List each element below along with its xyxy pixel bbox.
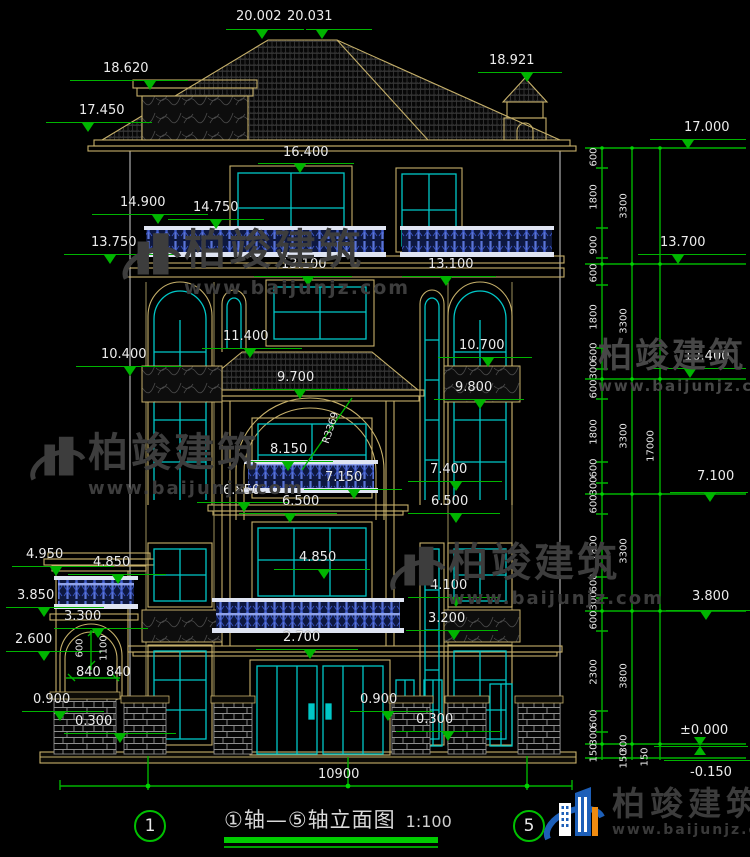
drawing-title-block: ①轴—⑤轴立面图 1:100: [224, 804, 452, 848]
elevation-label: 11.400: [223, 330, 269, 344]
elevation-line: [46, 122, 152, 123]
elevation-line: [92, 214, 208, 215]
level-triangle: [704, 493, 716, 502]
elevation-label: 10.400: [101, 348, 147, 362]
level-triangle: [442, 732, 454, 741]
drawing-title: ①轴—⑤轴立面图: [224, 804, 396, 834]
chain-dimension: 150: [589, 743, 600, 762]
elevation-line: [70, 80, 188, 81]
elevation-label: 18.921: [489, 54, 535, 68]
level-triangle: [700, 611, 712, 620]
watermark-brand: 柏竣建筑: [448, 530, 664, 588]
level-triangle: [238, 503, 250, 512]
axis-number: 1: [145, 816, 156, 836]
level-triangle: [294, 390, 306, 399]
level-triangle: [482, 358, 494, 367]
elevation-label: 3.850: [17, 589, 54, 603]
level-triangle: [284, 514, 296, 523]
elevation-line: [638, 254, 746, 255]
chain-dimension: 150: [619, 749, 630, 768]
dimension-text: 840: [106, 665, 131, 680]
elevation-label: 14.900: [120, 196, 166, 210]
chain-dimension: 17000: [646, 430, 657, 462]
elevation-label: 10.700: [459, 339, 505, 353]
level-triangle: [294, 164, 306, 173]
chain-dimension: 1800: [589, 304, 600, 329]
elevation-label: 6.500: [431, 495, 468, 509]
watermark-logo-icon: [26, 429, 88, 491]
elevation-label: 20.002: [236, 10, 282, 24]
watermark-logo-icon: [118, 225, 184, 291]
elevation-label: 7.150: [325, 471, 362, 485]
elevation-label: 7.100: [697, 470, 734, 484]
chain-dimension: 1100: [99, 635, 110, 660]
level-triangle: [244, 349, 256, 358]
cad-canvas: 柏竣建筑 www.baijunjz.com 柏竣建筑 www.baijunjz.…: [0, 0, 750, 857]
elevation-line: [650, 139, 746, 140]
company-logo: 柏竣建筑 www.baijunjz.com: [542, 786, 750, 852]
level-triangle: [104, 255, 116, 264]
chain-dimension: 3300: [619, 423, 630, 448]
watermark-brand: 柏竣建筑: [88, 420, 304, 478]
level-triangle: [521, 73, 533, 82]
watermark-brand: 柏竣建筑: [184, 216, 410, 277]
chain-dimension: R3369: [321, 411, 341, 445]
watermark: 柏竣建筑 www.baijunjz.com: [598, 328, 750, 395]
watermark-logo-icon: [386, 539, 448, 601]
watermark: 柏竣建筑 www.baijunjz.com: [26, 420, 304, 499]
level-triangle: [38, 652, 50, 661]
level-symbol-x: [694, 746, 706, 755]
elevation-label: 0.300: [416, 713, 453, 727]
level-triangle: [450, 514, 462, 523]
level-triangle: [144, 81, 156, 90]
elevation-label: 7.400: [430, 463, 467, 477]
elevation-line: [6, 651, 102, 652]
dimension-text: 10900: [318, 767, 359, 782]
elevation-label: 3.300: [64, 610, 101, 624]
elevation-label: 9.800: [455, 381, 492, 395]
company-logo-icon: [542, 786, 606, 852]
level-triangle: [318, 570, 330, 579]
level-triangle: [382, 712, 394, 721]
company-logo-url: www.baijunjz.com: [612, 822, 750, 838]
chain-dimension: 3800: [619, 663, 630, 688]
elevation-line: [664, 760, 750, 761]
level-triangle: [440, 277, 452, 286]
level-triangle: [450, 482, 462, 491]
elevation-label: 17.000: [684, 121, 730, 135]
elevation-label: 16.400: [283, 146, 329, 160]
level-triangle: [124, 367, 136, 376]
elevation-label: 4.850: [93, 556, 130, 570]
chain-dimension: 3300: [619, 193, 630, 218]
elevation-label: -0.150: [690, 766, 732, 780]
drawing-scale: 1:100: [406, 812, 452, 831]
level-triangle: [256, 30, 268, 39]
watermark: 柏竣建筑 www.baijunjz.com: [386, 530, 664, 609]
axis-bubble-5: 5: [513, 810, 545, 842]
level-triangle: [38, 608, 50, 617]
elevation-label: ±0.000: [680, 724, 728, 738]
chain-dimension: 900: [589, 235, 600, 254]
elevation-label: 2.700: [283, 631, 320, 645]
elevation-label: 20.031: [287, 10, 333, 24]
level-triangle: [50, 567, 62, 576]
level-triangle: [82, 123, 94, 132]
chain-dimension: 600: [589, 147, 600, 166]
elevation-label: 3.800: [692, 590, 729, 604]
level-triangle: [54, 712, 66, 721]
company-logo-brand: 柏竣建筑: [612, 786, 750, 822]
elevation-label: 4.950: [26, 548, 63, 562]
axis-bubble-1: 1: [134, 810, 166, 842]
watermark-url: www.baijunjz.com: [184, 277, 410, 299]
level-triangle: [112, 575, 124, 584]
chain-dimension: 300: [589, 476, 600, 495]
title-underline-thin: [224, 846, 438, 848]
elevation-label: 2.600: [15, 633, 52, 647]
elevation-label: 0.900: [33, 693, 70, 707]
elevation-label: 14.750: [193, 201, 239, 215]
elevation-label: 3.200: [428, 612, 465, 626]
elevation-label: 0.900: [360, 693, 397, 707]
watermark-url: www.baijunjz.com: [88, 478, 304, 499]
elevation-label: 4.850: [299, 551, 336, 565]
level-triangle: [448, 631, 460, 640]
watermark-url: www.baijunjz.com: [598, 377, 750, 395]
chain-dimension: 1800: [589, 184, 600, 209]
dimension-text: 840: [76, 665, 101, 680]
elevation-line: [258, 163, 354, 164]
level-symbol-x: [694, 737, 706, 746]
watermark: 柏竣建筑 www.baijunjz.com: [118, 216, 410, 299]
level-triangle: [474, 400, 486, 409]
elevation-label: 9.700: [277, 371, 314, 385]
chain-dimension: 150: [640, 747, 651, 766]
watermark-brand: 柏竣建筑: [598, 328, 750, 377]
chain-dimension: 2300: [589, 659, 600, 684]
chain-dimension: 600: [589, 494, 600, 513]
chain-dimension: 600: [589, 263, 600, 282]
title-underline-bar: [224, 837, 438, 843]
elevation-label: 18.620: [103, 62, 149, 76]
axis-number: 5: [524, 816, 535, 836]
elevation-line: [478, 72, 562, 73]
chain-dimension: 600: [589, 458, 600, 477]
level-triangle: [316, 30, 328, 39]
elevation-label: 13.100: [428, 258, 474, 272]
chain-dimension: 1800: [589, 419, 600, 444]
watermark-url: www.baijunjz.com: [448, 588, 664, 609]
level-triangle: [348, 490, 360, 499]
elevation-label: 0.300: [75, 715, 112, 729]
level-triangle: [304, 650, 316, 659]
level-triangle: [682, 140, 694, 149]
elevation-label: 13.700: [660, 236, 706, 250]
elevation-label: 17.450: [79, 104, 125, 118]
level-triangle: [672, 255, 684, 264]
chain-dimension: 600: [589, 610, 600, 629]
chain-dimension: 600: [75, 638, 86, 657]
level-triangle: [114, 734, 126, 743]
elevation-line: [6, 607, 104, 608]
